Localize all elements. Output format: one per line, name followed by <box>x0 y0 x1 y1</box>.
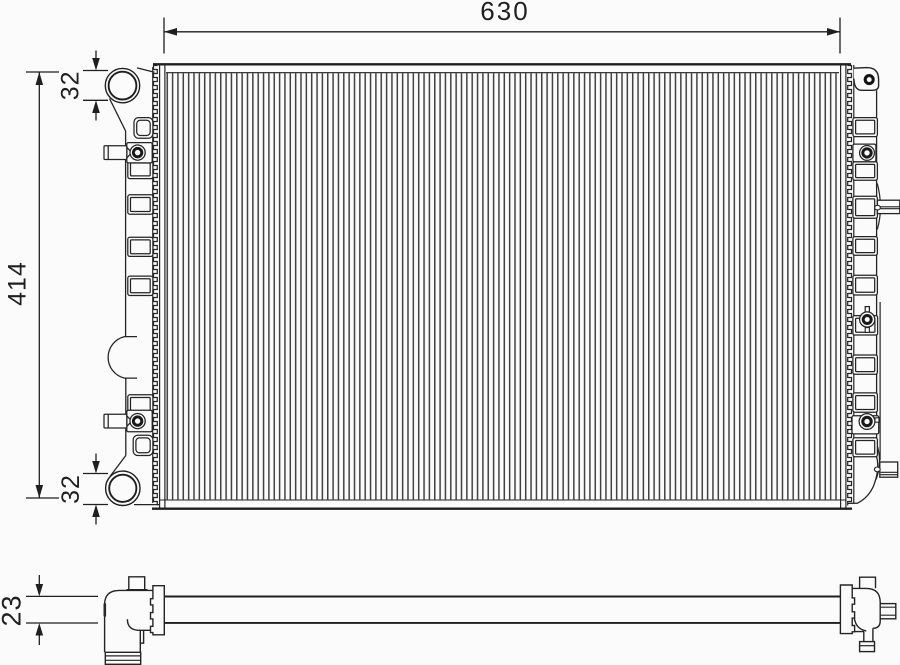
svg-text:630: 630 <box>480 0 529 26</box>
svg-text:414: 414 <box>4 261 32 306</box>
svg-text:23: 23 <box>0 594 27 626</box>
svg-text:32: 32 <box>57 474 85 504</box>
svg-text:32: 32 <box>57 70 85 100</box>
